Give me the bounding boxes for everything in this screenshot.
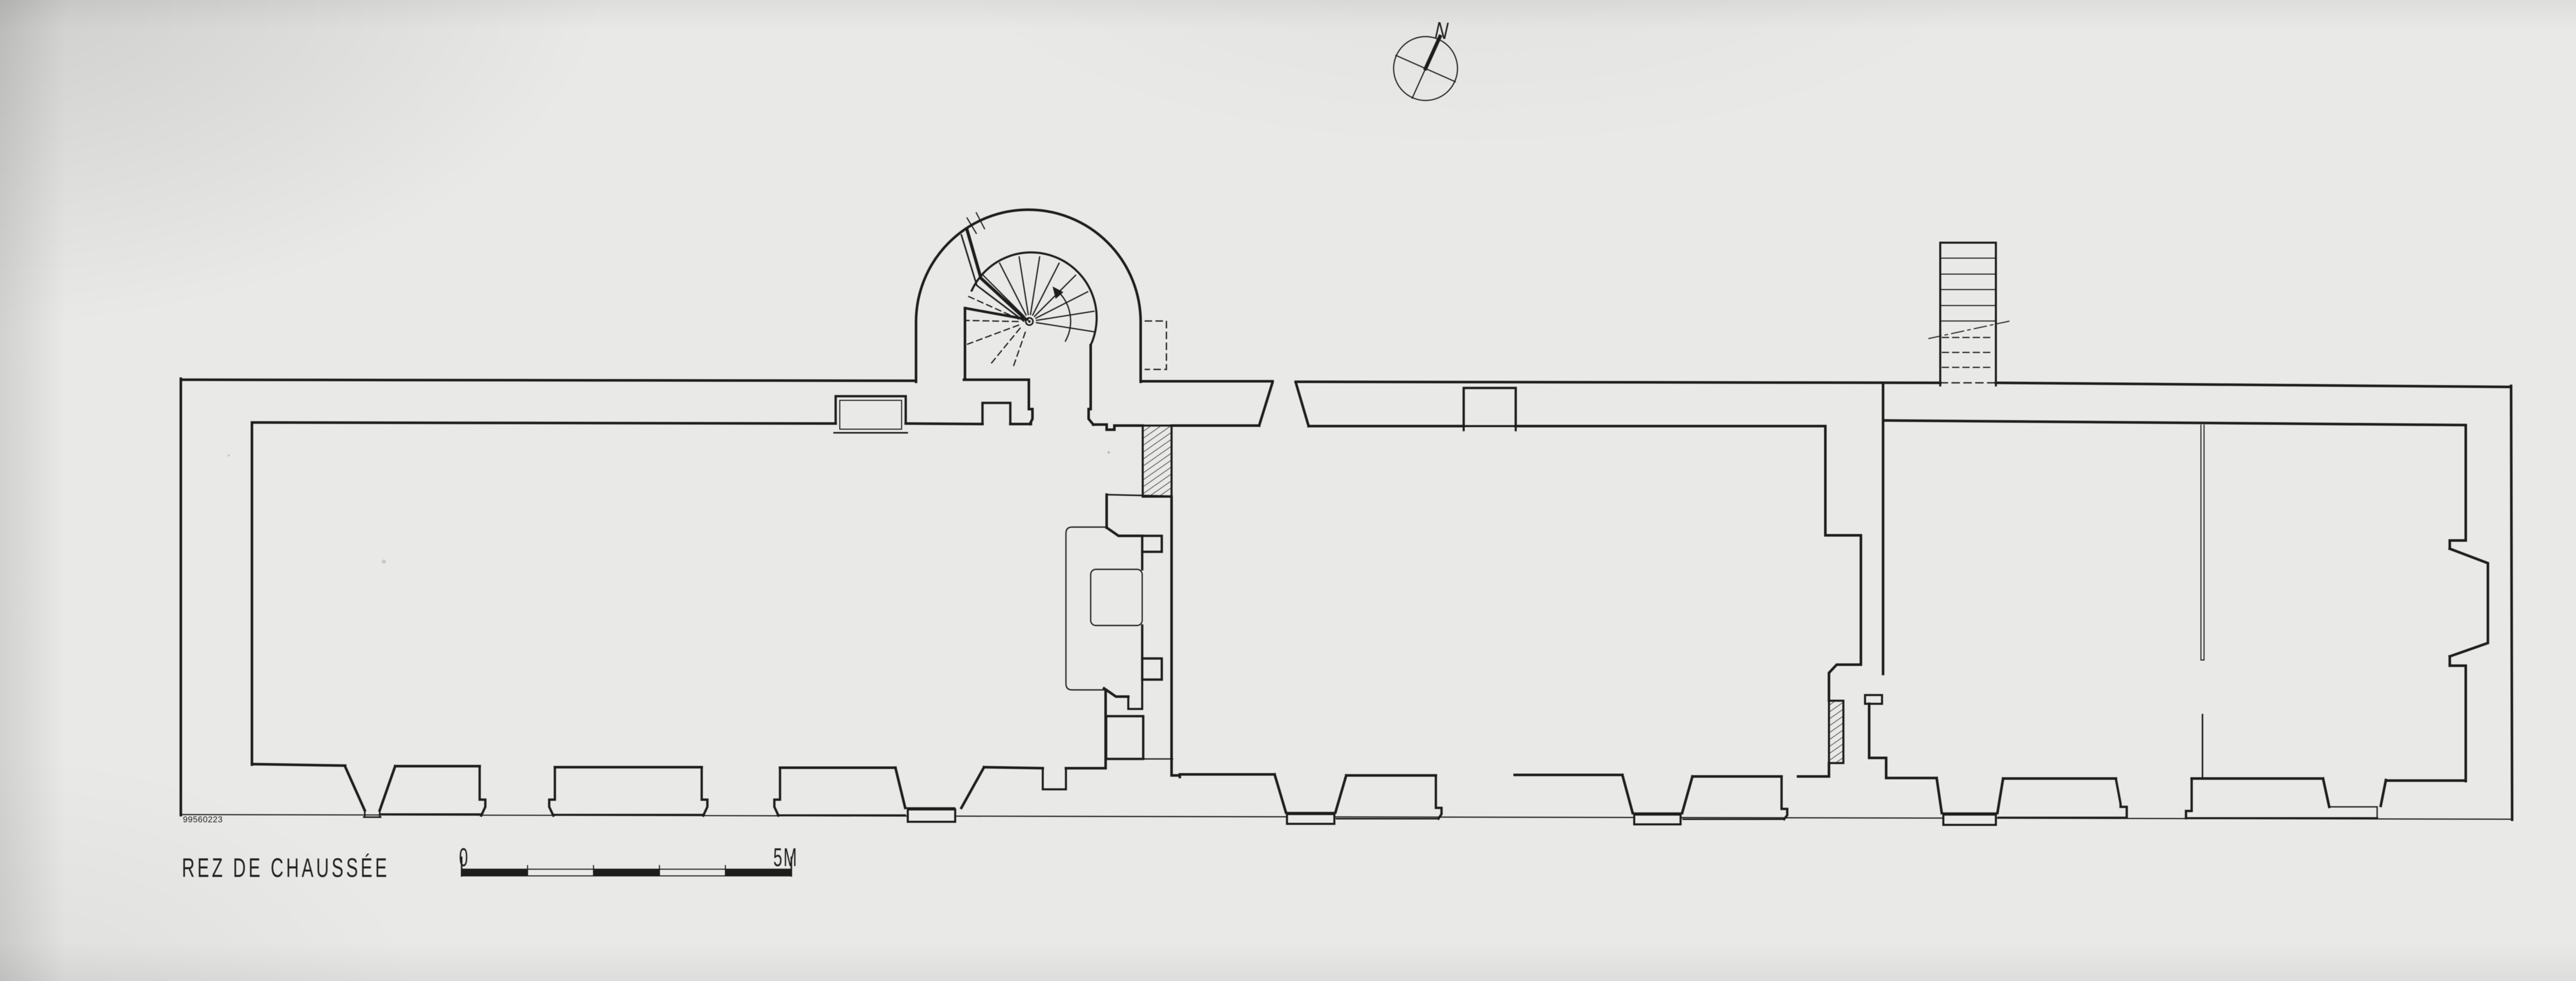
svg-text:N: N <box>1434 17 1449 44</box>
svg-text:5M: 5M <box>773 842 798 871</box>
svg-text:0: 0 <box>459 842 468 871</box>
svg-text:99560223: 99560223 <box>183 815 223 824</box>
svg-text:REZ DE CHAUSSÉE: REZ DE CHAUSSÉE <box>182 853 389 883</box>
